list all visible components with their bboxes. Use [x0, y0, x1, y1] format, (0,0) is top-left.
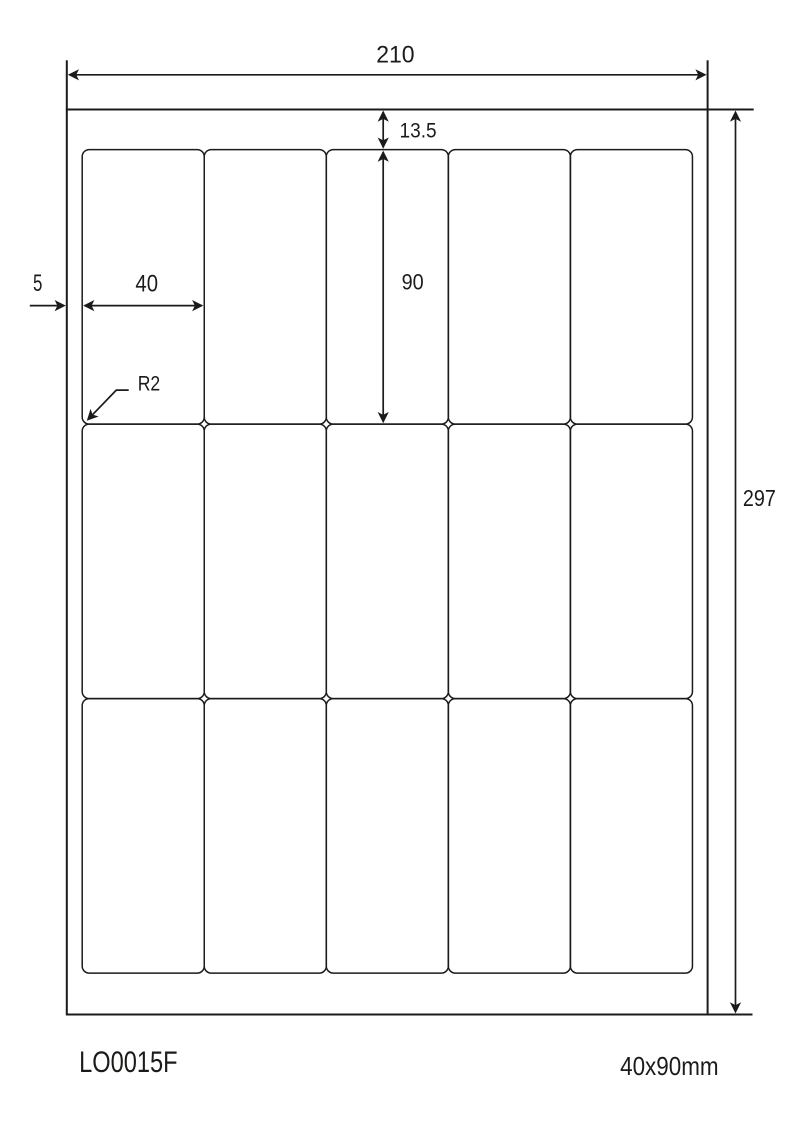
svg-text:LO0015F: LO0015F — [79, 1046, 178, 1079]
svg-text:R2: R2 — [138, 372, 161, 395]
svg-text:40: 40 — [135, 270, 158, 297]
svg-text:210: 210 — [376, 41, 414, 68]
svg-text:5: 5 — [33, 270, 42, 297]
svg-text:13.5: 13.5 — [400, 120, 437, 143]
svg-text:297: 297 — [743, 485, 776, 511]
svg-text:40x90mm: 40x90mm — [620, 1051, 719, 1081]
svg-text:90: 90 — [402, 270, 424, 295]
